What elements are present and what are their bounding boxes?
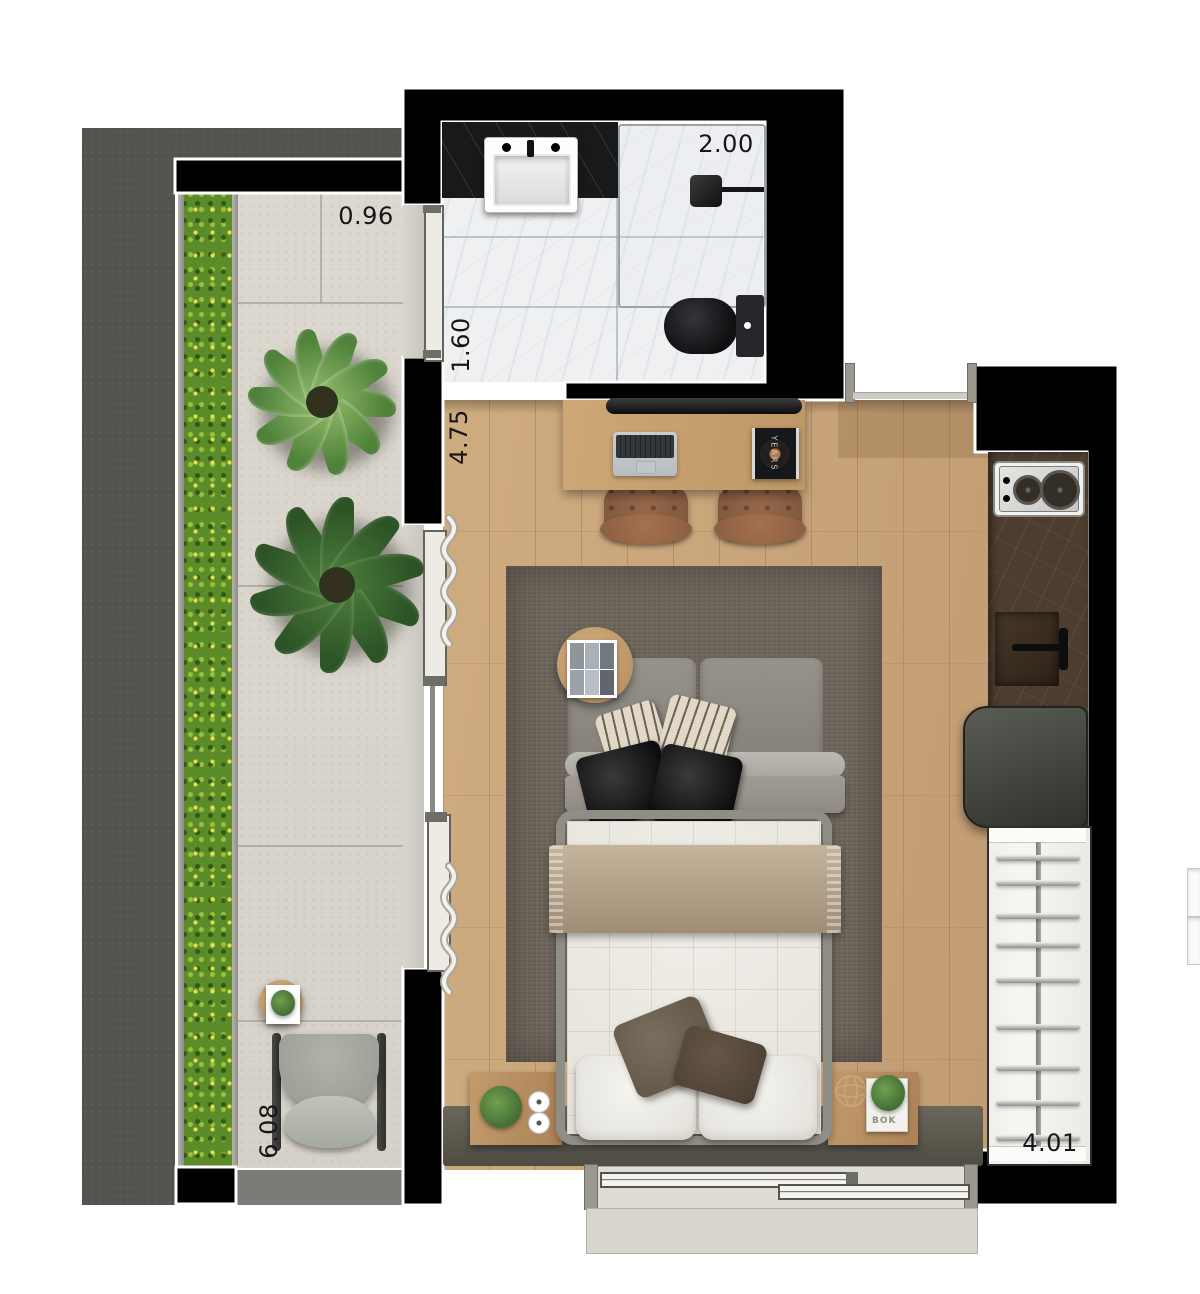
door-jamb — [584, 1164, 598, 1210]
closet-cap — [989, 828, 1086, 843]
floor-plan: YEARS BOK — [0, 0, 1200, 1294]
wire-sphere-icon — [834, 1074, 868, 1108]
kitchen-faucet-icon — [1059, 628, 1068, 670]
candle-icon — [528, 1091, 550, 1113]
desk-chair-cushion — [714, 514, 806, 544]
entry-threshold — [853, 392, 967, 399]
bathroom-sink — [484, 137, 578, 213]
closet-rail — [996, 942, 1080, 948]
dim-room-width: 4.01 — [1015, 1129, 1085, 1157]
burner-icon — [1040, 470, 1080, 510]
blanket-fringe — [827, 845, 841, 933]
balcony-table-pot — [266, 985, 300, 1024]
blanket-fringe — [549, 845, 563, 933]
closet-rail — [996, 880, 1080, 886]
closet-rail — [996, 913, 1080, 919]
balcony-top-wall — [175, 159, 403, 193]
closet-rail — [996, 1024, 1080, 1030]
curtain-icon — [438, 514, 462, 646]
balcony-bottom-wall-block — [176, 1167, 236, 1204]
photo-frame — [567, 640, 617, 698]
door-cap — [423, 676, 445, 686]
small-plant-icon — [271, 990, 295, 1016]
throw-blanket — [549, 845, 841, 933]
shower-arm — [722, 187, 764, 192]
left-wall-upper — [403, 357, 443, 525]
bathroom-window — [424, 205, 444, 362]
record-label-text: YEARS — [770, 429, 779, 479]
sink-basin — [493, 154, 571, 206]
bathroom-window-track — [403, 205, 424, 358]
dim-room-depth: 4.75 — [445, 402, 473, 472]
photo-grid — [570, 643, 614, 695]
lounge-chair-seat — [284, 1096, 376, 1148]
candle-icon — [528, 1112, 550, 1134]
curtain-icon — [438, 862, 462, 994]
door-cap — [425, 812, 447, 822]
exterior-panel — [1187, 868, 1200, 917]
shower-head-icon — [690, 175, 722, 207]
wardrobe-closet — [987, 826, 1092, 1166]
entry-jamb — [967, 363, 977, 403]
door-cap — [846, 1172, 858, 1184]
cooktop-knob-icon — [1003, 477, 1010, 484]
dim-bathroom-width: 2.00 — [691, 130, 761, 158]
plant-on-book-icon — [871, 1075, 905, 1111]
tap-handle-icon — [502, 143, 511, 152]
dim-bathroom-depth: 1.60 — [447, 310, 475, 380]
refrigerator — [963, 706, 1088, 828]
desk-chair-cushion — [600, 514, 692, 544]
sliding-door-panel — [778, 1184, 970, 1200]
burner-icon — [1013, 475, 1043, 505]
exterior-panel — [1187, 917, 1200, 965]
door-rail — [430, 678, 435, 818]
exterior-step — [586, 1208, 978, 1254]
decor-book: BOK — [866, 1078, 908, 1132]
faucet-icon — [527, 140, 534, 157]
dim-balcony-width: 0.96 — [331, 202, 401, 230]
book-text: BOK — [872, 1116, 897, 1126]
flush-button-icon — [744, 322, 751, 329]
closet-rail — [996, 1065, 1080, 1071]
potted-plant-icon — [480, 1086, 522, 1128]
toilet — [664, 298, 738, 354]
laptop-trackpad — [636, 461, 656, 474]
laptop-keyboard — [616, 435, 674, 458]
monitor-bar — [606, 398, 802, 414]
kitchen-faucet-icon — [1012, 644, 1064, 651]
tap-handle-icon — [551, 143, 560, 152]
cooktop-knob-icon — [1003, 495, 1010, 502]
cooktop — [993, 461, 1085, 517]
laptop — [613, 432, 677, 476]
closet-rail — [996, 855, 1080, 861]
window-cap — [423, 350, 441, 358]
window-cap — [423, 205, 441, 213]
dim-balcony-length: 6.08 — [255, 1096, 283, 1166]
framed-vinyl-record: YEARS — [752, 428, 799, 479]
left-wall-lower — [403, 968, 443, 1205]
closet-rail — [996, 977, 1080, 983]
closet-rail — [996, 1100, 1080, 1106]
